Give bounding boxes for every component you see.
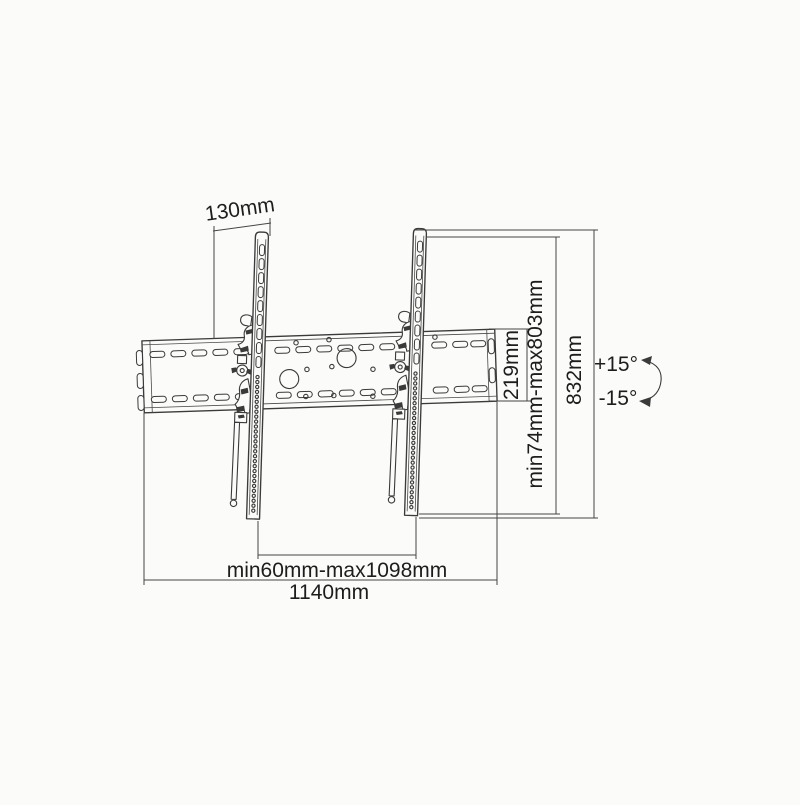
dimension-label: min60mm-max1098mm: [227, 559, 448, 582]
tilt-up-label: +15°: [594, 353, 638, 376]
technical-drawing-page: 130mm 219mm min74mm-max803mm 832mm +15° …: [0, 0, 800, 800]
dimension-label: 219mm: [500, 330, 523, 400]
wall-plate: [136, 329, 497, 413]
tv-mount-diagram: 130mm 219mm min74mm-max803mm 832mm +15° …: [0, 0, 800, 800]
dimension-label: 832mm: [563, 335, 586, 405]
dimension-label: 1140mm: [289, 581, 369, 604]
dimension-label: min74mm-max803mm: [524, 280, 547, 489]
plate-left-end-slots: [136, 350, 144, 410]
tilt-down-label: -15°: [599, 387, 638, 410]
